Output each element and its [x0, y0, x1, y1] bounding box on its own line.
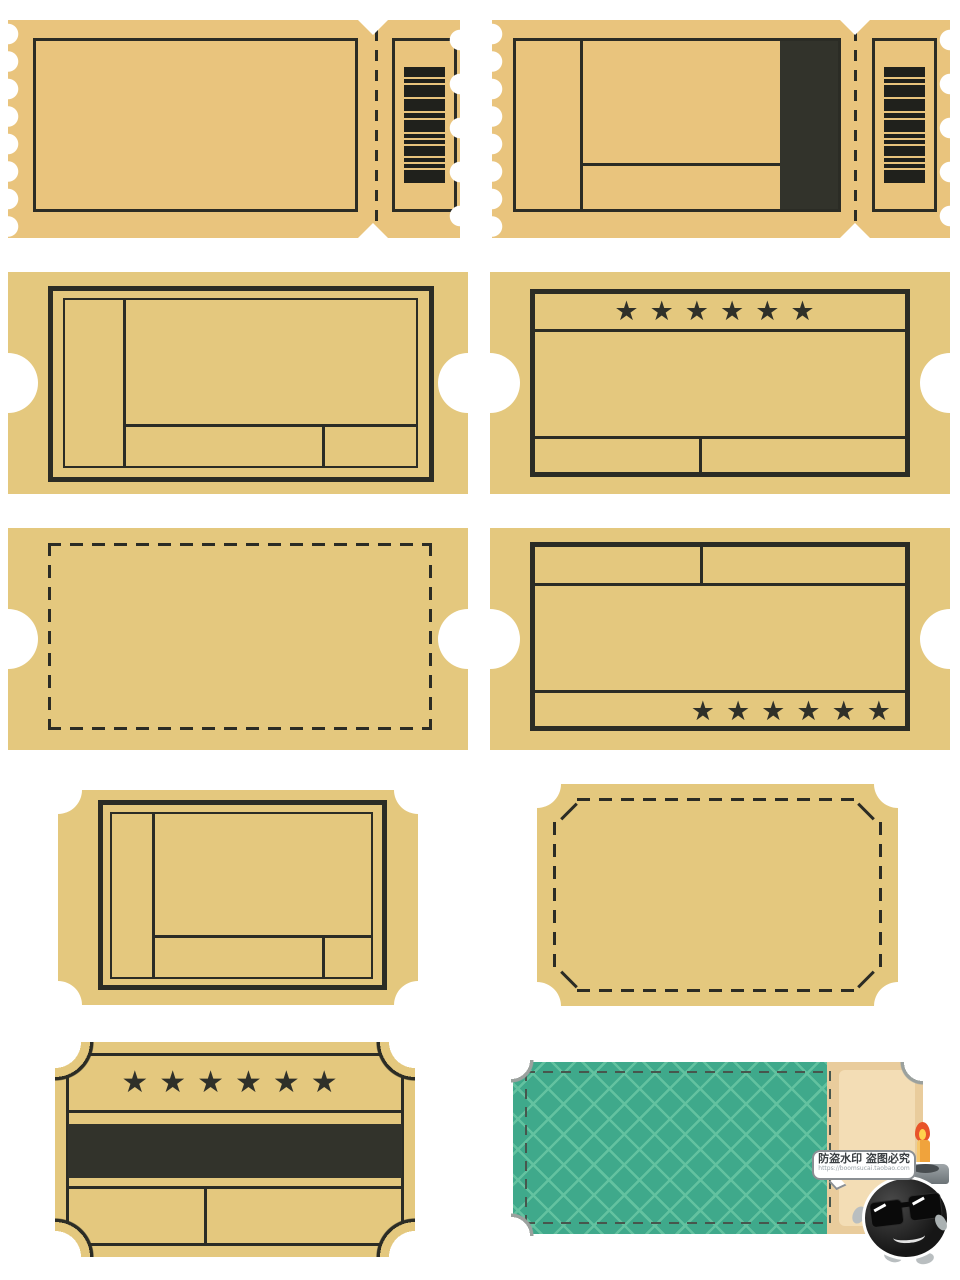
teal-lattice-body	[513, 1062, 827, 1234]
cell-divider	[322, 424, 325, 467]
chamfer-dash-icon	[857, 971, 875, 989]
band-divider	[68, 1186, 402, 1189]
bracket-corner-icon	[394, 981, 442, 1029]
cell-divider	[700, 544, 703, 586]
inner-frame	[110, 812, 373, 979]
dashed-outline	[525, 1222, 831, 1224]
barcode-stub	[872, 38, 937, 212]
ticket-barcode-fields	[492, 20, 950, 238]
side-notch-icon	[920, 353, 960, 413]
ticket-bracket-fields	[58, 790, 418, 1005]
inner-frame	[63, 298, 418, 468]
bracket-corner-icon	[34, 766, 82, 814]
dashed-outline	[525, 1071, 831, 1073]
bracket-corner-icon	[511, 1060, 559, 1108]
tear-notch-icon	[358, 20, 388, 35]
star-row: ★★★★★★	[67, 1068, 403, 1098]
chamfer-dash-icon	[857, 803, 875, 821]
side-notch-icon	[0, 353, 38, 413]
column-divider	[580, 41, 583, 209]
dashed-frame	[879, 822, 882, 968]
scalloped-edge-icon	[0, 20, 20, 238]
inner-outline	[89, 1243, 381, 1246]
ticket-template-sheet: ★★★★★★ ★★★★★★	[0, 0, 960, 1280]
dashed-frame	[553, 822, 556, 968]
bracket-corner-icon	[513, 982, 561, 1030]
barcode	[884, 65, 925, 185]
bracket-corner-icon	[34, 981, 82, 1029]
perforation-dashed-line	[854, 30, 857, 228]
barcode	[404, 65, 445, 185]
row-divider	[580, 163, 780, 166]
ticket-barcode-blank	[8, 20, 460, 238]
flame-icon	[919, 1129, 926, 1140]
inner-outline	[89, 1053, 381, 1056]
bracket-corner-icon	[363, 1205, 415, 1257]
bracket-corner-icon	[55, 1205, 107, 1257]
row-divider	[123, 424, 417, 427]
dashed-frame	[577, 989, 858, 992]
stub-separator-dashed-line	[829, 1071, 831, 1223]
dashed-frame	[48, 727, 432, 730]
bracket-corner-icon	[394, 766, 442, 814]
ticket-stars-darkstripe: ★★★★★★	[55, 1042, 415, 1257]
ticket-stars-top: ★★★★★★	[490, 272, 950, 494]
ticket-stars-bottom: ★★★★★★	[490, 528, 950, 750]
band-divider	[533, 690, 907, 693]
cell-divider	[322, 935, 325, 978]
bracket-corner-icon	[875, 1062, 923, 1110]
row-divider	[152, 935, 372, 938]
scalloped-edge-icon	[938, 20, 960, 238]
bracket-corner-icon	[874, 982, 922, 1030]
dashed-frame	[48, 543, 51, 730]
watermark-bubble: 防盗水印 盗图必究 https://boomsucai.taobao.com	[812, 1150, 916, 1180]
bracket-corner-icon	[511, 1188, 559, 1236]
scalloped-edge-icon	[448, 20, 472, 238]
star-row: ★★★★★★	[530, 698, 902, 725]
bracket-corner-icon	[513, 760, 561, 808]
bracket-corner-icon	[363, 1042, 415, 1094]
band-divider	[533, 329, 907, 332]
ticket-double-frame-fields	[8, 272, 468, 494]
bracket-corner-icon	[55, 1042, 107, 1094]
ticket-bracket-dashed	[537, 784, 898, 1006]
column-divider	[123, 299, 126, 467]
chamfer-dash-icon	[560, 971, 578, 989]
side-notch-icon	[920, 609, 960, 669]
scalloped-edge-icon	[480, 20, 504, 238]
chamfer-dash-icon	[560, 803, 578, 821]
dark-band	[780, 41, 838, 209]
blank-frame	[33, 38, 358, 212]
side-notch-icon	[0, 609, 38, 669]
watermark-url: https://boomsucai.taobao.com	[814, 1165, 914, 1172]
tear-notch-icon	[358, 223, 388, 238]
perforation-dashed-line	[375, 30, 378, 228]
tear-notch-icon	[840, 20, 870, 35]
bomb-cap-icon	[912, 1164, 939, 1173]
band-divider	[68, 1110, 402, 1113]
star-row: ★★★★★★	[530, 298, 910, 325]
band-divider	[533, 436, 907, 439]
dashed-frame	[577, 798, 858, 801]
band-divider	[533, 583, 907, 586]
cell-divider	[699, 436, 702, 474]
dashed-frame	[48, 543, 432, 546]
bracket-corner-icon	[874, 760, 922, 808]
tear-notch-icon	[840, 223, 870, 238]
cell-divider	[204, 1186, 207, 1243]
side-notch-icon	[460, 353, 520, 413]
watermark-text: 防盗水印 盗图必究	[814, 1153, 914, 1165]
column-divider	[152, 813, 155, 978]
dashed-frame	[429, 543, 432, 730]
ticket-dashed-blank	[8, 528, 468, 750]
side-notch-icon	[460, 609, 520, 669]
dark-stripe	[68, 1124, 402, 1178]
